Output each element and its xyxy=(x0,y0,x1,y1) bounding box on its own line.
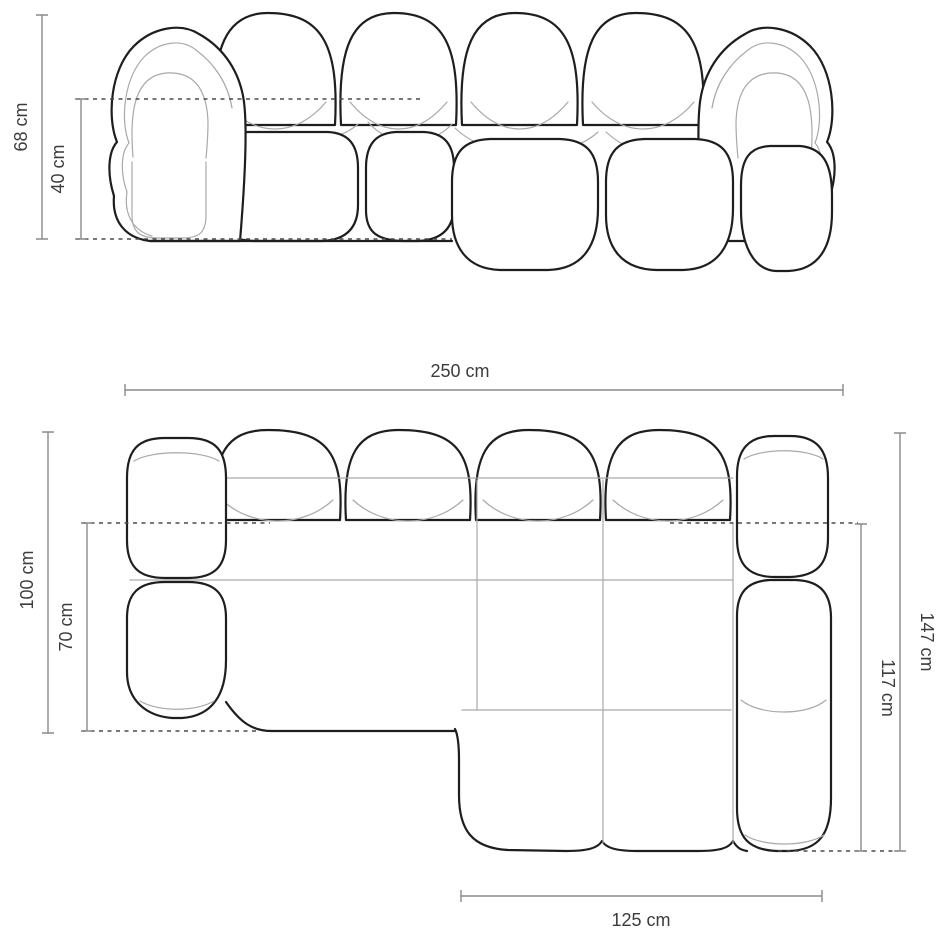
back-cushion xyxy=(340,13,456,125)
dim-width-total-label: 250 cm xyxy=(430,361,489,381)
dim-depth-total-label: 100 cm xyxy=(17,550,37,609)
back-cushion-top xyxy=(475,430,600,520)
chaise-front-cushion xyxy=(606,139,733,270)
dimension-width-total: 250 cm xyxy=(125,361,843,396)
dimension-height-seat: 40 cm xyxy=(48,99,87,239)
back-cushion-top xyxy=(214,430,340,520)
dim-height-seat-label: 40 cm xyxy=(48,144,68,193)
front-view: 68 cm 40 cm xyxy=(11,13,835,271)
dim-chaise-total-label: 147 cm xyxy=(917,612,937,671)
back-cushion-top xyxy=(605,430,730,520)
left-armrest-top xyxy=(127,438,226,578)
left-armrest-top xyxy=(127,582,226,718)
dimension-chaise-width: 125 cm xyxy=(461,890,822,930)
back-cushion xyxy=(582,13,703,125)
sofa-dimension-diagram: 68 cm 40 cm xyxy=(0,0,940,940)
dimension-chaise-inner: 117 cm xyxy=(855,524,898,851)
dimension-depth-seat: 70 cm xyxy=(56,523,93,731)
dim-chaise-width-label: 125 cm xyxy=(611,910,670,930)
seat-cushion xyxy=(366,132,454,241)
dim-depth-seat-label: 70 cm xyxy=(56,602,76,651)
left-armrest xyxy=(109,28,245,241)
top-view: 250 cm 100 cm 70 cm 147 cm 117 cm 125 cm xyxy=(17,361,937,930)
sofa-top-outline xyxy=(127,430,831,851)
dimension-depth-total: 100 cm xyxy=(17,432,54,733)
back-cushion-top xyxy=(345,430,470,520)
sofa-front-outline xyxy=(109,13,834,271)
dim-height-total-label: 68 cm xyxy=(11,102,31,151)
dim-chaise-inner-label: 117 cm xyxy=(878,659,898,717)
chaise-front-cushion xyxy=(741,146,832,271)
chaise-front-cushion xyxy=(452,139,598,270)
right-armrest-top xyxy=(737,436,828,577)
dimension-height-total: 68 cm xyxy=(11,15,48,239)
dimension-chaise-total: 147 cm xyxy=(894,433,937,851)
right-armrest-top xyxy=(737,580,831,851)
seat-front-edge xyxy=(226,702,455,731)
back-cushion xyxy=(461,13,577,125)
diagram-canvas: 68 cm 40 cm xyxy=(0,0,940,940)
chaise-outline xyxy=(455,729,747,851)
